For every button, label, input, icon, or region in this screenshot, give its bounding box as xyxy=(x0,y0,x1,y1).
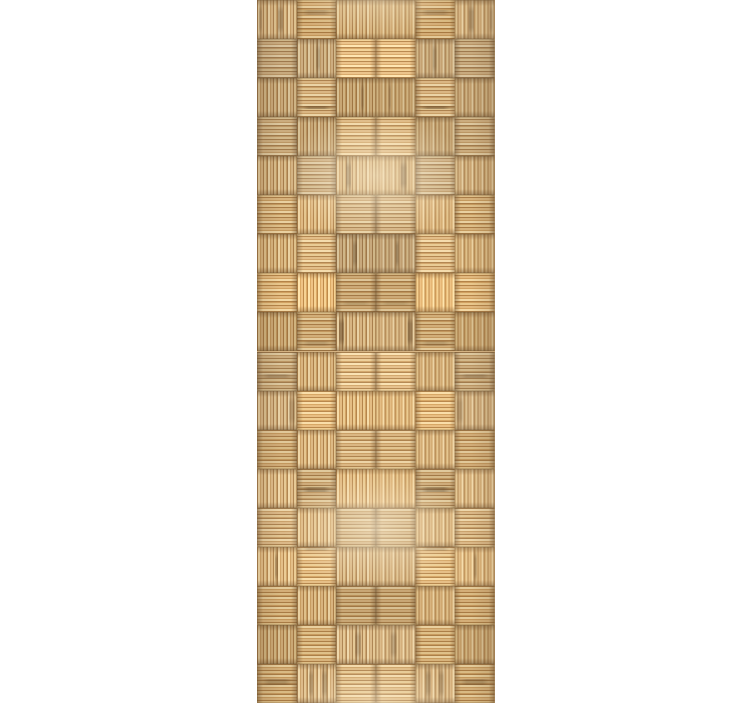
weave-cell xyxy=(416,586,456,625)
bamboo-streak xyxy=(297,487,337,492)
weave-cell xyxy=(257,312,297,351)
weave-cell xyxy=(416,273,456,312)
weave-cell xyxy=(336,39,376,78)
bamboo-streak xyxy=(455,679,495,684)
weave-cell xyxy=(297,312,337,351)
weave-cell xyxy=(376,39,416,78)
weave-cell xyxy=(416,469,456,508)
weave-cell xyxy=(297,664,337,703)
bamboo-streak xyxy=(297,341,337,347)
weave-cell xyxy=(455,586,495,625)
weave-cell xyxy=(376,78,416,117)
bamboo-streak xyxy=(257,374,297,377)
weave-cell xyxy=(455,391,495,430)
bamboo-streak xyxy=(388,78,391,117)
weave-cell xyxy=(297,273,337,312)
weave-cell xyxy=(455,195,495,234)
bamboo-texture-panel xyxy=(257,0,495,703)
weave-cell xyxy=(297,547,337,586)
weave-cell xyxy=(297,0,337,39)
weave-cell xyxy=(416,430,456,469)
weave-cell xyxy=(336,547,376,586)
weave-cell xyxy=(336,273,376,312)
weave-cell xyxy=(376,391,416,430)
weave-grid xyxy=(257,0,495,703)
weave-cell xyxy=(257,664,297,703)
bamboo-streak xyxy=(469,0,474,39)
weave-cell xyxy=(416,39,456,78)
weave-cell xyxy=(297,156,337,195)
weave-cell xyxy=(376,547,416,586)
weave-cell xyxy=(257,156,297,195)
weave-cell xyxy=(416,117,456,156)
weave-cell xyxy=(297,469,337,508)
weave-cell xyxy=(376,469,416,508)
bamboo-streak xyxy=(490,0,492,39)
weave-cell xyxy=(376,352,416,391)
bamboo-streak xyxy=(257,679,297,684)
bamboo-streak xyxy=(391,625,397,664)
weave-cell xyxy=(455,430,495,469)
weave-cell xyxy=(336,78,376,117)
weave-cell xyxy=(336,0,376,39)
weave-cell xyxy=(297,39,337,78)
bamboo-streak xyxy=(353,234,357,273)
weave-cell xyxy=(416,664,456,703)
weave-cell xyxy=(257,547,297,586)
weave-cell xyxy=(336,391,376,430)
bamboo-streak xyxy=(416,546,456,551)
bamboo-streak xyxy=(376,301,416,306)
bamboo-streak xyxy=(342,312,344,351)
bamboo-streak xyxy=(346,156,352,195)
page-background xyxy=(0,0,752,703)
weave-cell xyxy=(336,625,376,664)
weave-cell xyxy=(376,625,416,664)
bamboo-streak xyxy=(408,312,410,351)
bamboo-streak xyxy=(322,664,327,703)
bamboo-streak xyxy=(460,391,463,430)
weave-cell xyxy=(416,234,456,273)
weave-cell xyxy=(257,39,297,78)
bamboo-streak xyxy=(425,664,430,703)
weave-cell xyxy=(336,312,376,351)
weave-cell xyxy=(455,39,495,78)
weave-cell xyxy=(455,469,495,508)
weave-cell xyxy=(376,117,416,156)
weave-cell xyxy=(376,508,416,547)
weave-cell xyxy=(376,430,416,469)
weave-cell xyxy=(297,195,337,234)
bamboo-streak xyxy=(289,391,292,430)
weave-cell xyxy=(297,234,337,273)
weave-cell xyxy=(257,469,297,508)
weave-cell xyxy=(455,625,495,664)
bamboo-streak xyxy=(410,312,413,351)
bamboo-streak xyxy=(316,39,320,78)
weave-cell xyxy=(257,234,297,273)
bamboo-streak xyxy=(416,487,456,492)
bamboo-streak xyxy=(416,10,456,15)
weave-cell xyxy=(376,586,416,625)
bamboo-streak xyxy=(275,547,278,586)
weave-cell xyxy=(455,664,495,703)
weave-cell xyxy=(297,117,337,156)
weave-cell xyxy=(455,547,495,586)
weave-cell xyxy=(257,117,297,156)
bamboo-streak xyxy=(455,374,495,377)
bamboo-streak xyxy=(432,39,436,78)
weave-cell xyxy=(336,664,376,703)
weave-cell xyxy=(336,352,376,391)
bamboo-streak xyxy=(401,156,407,195)
weave-cell xyxy=(455,0,495,39)
weave-cell xyxy=(297,508,337,547)
weave-cell xyxy=(416,312,456,351)
weave-cell xyxy=(416,508,456,547)
weave-cell xyxy=(455,156,495,195)
weave-cell xyxy=(336,430,376,469)
bamboo-streak xyxy=(292,391,295,430)
weave-cell xyxy=(336,156,376,195)
weave-cell xyxy=(336,586,376,625)
bamboo-streak xyxy=(457,391,460,430)
weave-cell xyxy=(257,391,297,430)
weave-cell xyxy=(376,0,416,39)
weave-cell xyxy=(336,234,376,273)
weave-cell xyxy=(336,469,376,508)
bamboo-streak xyxy=(395,234,399,273)
bamboo-streak xyxy=(336,301,376,306)
weave-cell xyxy=(416,78,456,117)
weave-cell xyxy=(376,273,416,312)
weave-cell xyxy=(257,273,297,312)
weave-cell xyxy=(376,234,416,273)
weave-cell xyxy=(297,586,337,625)
bamboo-streak xyxy=(278,0,283,39)
weave-cell xyxy=(416,547,456,586)
bamboo-streak xyxy=(297,546,337,551)
weave-cell xyxy=(297,625,337,664)
weave-cell xyxy=(257,0,297,39)
weave-cell xyxy=(376,195,416,234)
weave-cell xyxy=(297,78,337,117)
weave-cell xyxy=(376,664,416,703)
bamboo-streak xyxy=(297,106,337,110)
weave-cell xyxy=(257,508,297,547)
weave-cell xyxy=(455,508,495,547)
bamboo-streak xyxy=(361,78,364,117)
weave-cell xyxy=(257,78,297,117)
bamboo-streak xyxy=(259,0,261,39)
bamboo-streak xyxy=(416,106,456,110)
weave-cell xyxy=(257,625,297,664)
weave-cell xyxy=(455,117,495,156)
weave-cell xyxy=(376,156,416,195)
weave-cell xyxy=(416,195,456,234)
weave-cell xyxy=(455,234,495,273)
weave-cell xyxy=(416,352,456,391)
bamboo-streak xyxy=(309,664,314,703)
weave-cell xyxy=(297,391,337,430)
weave-cell xyxy=(257,352,297,391)
weave-cell xyxy=(416,391,456,430)
weave-cell xyxy=(257,195,297,234)
weave-cell xyxy=(336,117,376,156)
weave-cell xyxy=(416,625,456,664)
weave-cell xyxy=(416,156,456,195)
weave-cell xyxy=(455,352,495,391)
bamboo-streak xyxy=(339,312,342,351)
weave-cell xyxy=(336,508,376,547)
weave-cell xyxy=(376,312,416,351)
bamboo-streak xyxy=(355,625,361,664)
weave-cell xyxy=(336,195,376,234)
bamboo-streak xyxy=(297,10,337,15)
weave-cell xyxy=(455,78,495,117)
bamboo-streak xyxy=(439,664,444,703)
weave-cell xyxy=(455,273,495,312)
bamboo-streak xyxy=(474,547,477,586)
weave-cell xyxy=(416,0,456,39)
weave-cell xyxy=(455,312,495,351)
weave-cell xyxy=(297,430,337,469)
weave-cell xyxy=(297,352,337,391)
weave-cell xyxy=(257,430,297,469)
weave-cell xyxy=(257,586,297,625)
bamboo-streak xyxy=(416,341,456,347)
